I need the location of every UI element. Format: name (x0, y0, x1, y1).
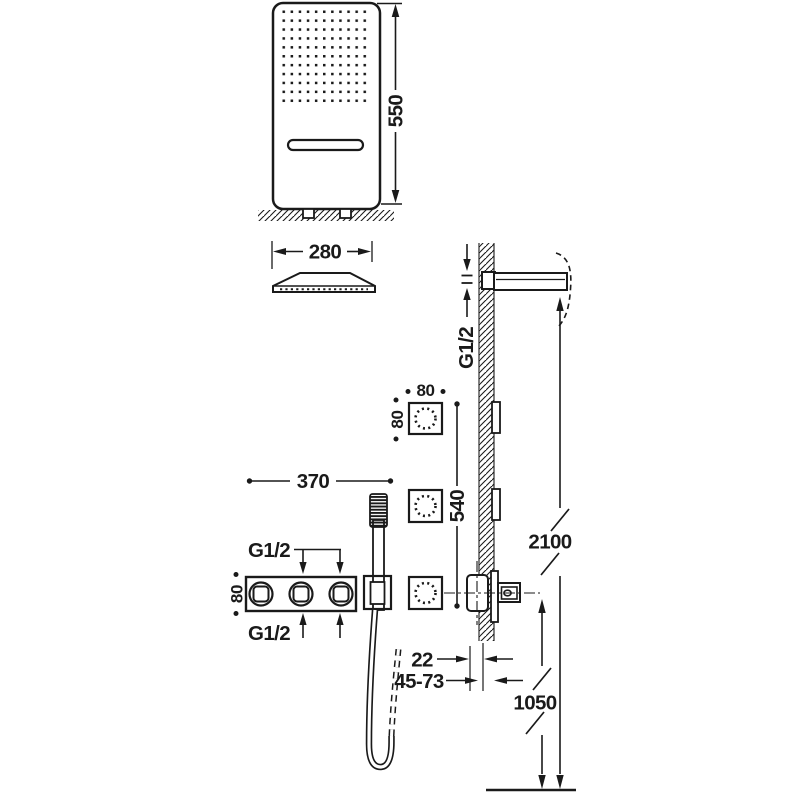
mixer-front-view (246, 577, 356, 611)
dim-1050: 1050 (513, 599, 556, 789)
dim-370: 370 (247, 470, 393, 493)
arrow-right (456, 656, 469, 663)
dim-280: 280 (272, 241, 372, 270)
shower-drawing: 550 280 G1/2 (0, 0, 800, 800)
break-mark (541, 553, 559, 575)
dim-80-mixer: 80 (228, 572, 247, 616)
jet-side-2 (492, 489, 500, 520)
body-jet-1 (409, 403, 442, 434)
arrow-down (299, 562, 306, 574)
technical-drawing-canvas: 550 280 G1/2 (0, 0, 800, 800)
dim-550-label: 550 (385, 95, 408, 128)
dim-45-73: 45-73 (394, 670, 523, 693)
dim-22-label: 22 (411, 649, 433, 672)
dim-550: 550 (377, 4, 408, 205)
nozzle-grid (283, 10, 372, 107)
dim-g12-top-label: G1/2 (248, 539, 290, 562)
break-mark (533, 668, 551, 690)
dim-540: 540 (446, 401, 469, 608)
waterfall-slot (288, 140, 363, 150)
arm-body (494, 273, 567, 290)
arrow-right (465, 677, 478, 684)
ceiling-hatch (258, 210, 394, 221)
body-jets-front-view (409, 403, 442, 609)
dim-80h-label: 80 (388, 410, 407, 428)
arrow-right (358, 248, 371, 255)
dim-45-73-label: 45-73 (394, 670, 444, 693)
dim-80-jet-height: 80 (388, 398, 407, 442)
hand-shower (364, 494, 399, 767)
dim-g12-mixer-top: G1/2 (248, 539, 344, 574)
break-mark (526, 712, 544, 734)
arrow-up (336, 613, 343, 625)
body-jet-2 (409, 490, 442, 522)
water-outlet-side-view (444, 561, 540, 625)
arrow-down (392, 190, 400, 203)
dim-80-mixer-label: 80 (228, 585, 247, 603)
arrow-up (392, 4, 400, 17)
arrow-up (463, 288, 470, 300)
dim-g12-mixer-bottom: G1/2 (248, 613, 344, 645)
mount-tab-left (303, 209, 314, 218)
overhead-shower-front-view (258, 3, 394, 221)
dim-g12-arm: G1/2 (455, 244, 478, 369)
arrow-up (299, 613, 306, 625)
mount-tab-right (340, 209, 351, 218)
dim-80w-label: 80 (416, 381, 434, 400)
handshower-head (370, 494, 387, 527)
outlet-escutcheon (491, 571, 498, 622)
arrow-down (538, 775, 545, 789)
arrow-left (273, 248, 286, 255)
dim-g12-arm-label: G1/2 (455, 327, 478, 369)
shower-arm-side-view (482, 253, 571, 328)
arrow-down (556, 775, 563, 789)
overhead-shower-side-view (273, 273, 375, 292)
arrow-up (556, 297, 563, 311)
jet-side-1 (492, 402, 500, 433)
arrow-left (484, 656, 497, 663)
arrow-up (538, 599, 545, 613)
dim-80-jet-width: 80 (406, 381, 446, 400)
arrow-left (494, 677, 507, 684)
arrow-down (463, 259, 470, 271)
break-mark (551, 509, 569, 531)
body-jet-3 (409, 577, 442, 609)
dim-2100: 2100 (528, 297, 571, 789)
handshower-holder-clamp (371, 582, 385, 604)
dim-1050-label: 1050 (513, 692, 556, 715)
dim-540-label: 540 (446, 490, 469, 523)
dim-2100-label: 2100 (528, 531, 571, 554)
dim-280-label: 280 (309, 241, 342, 264)
arrow-down (336, 562, 343, 574)
dim-370-label: 370 (297, 470, 330, 493)
dim-g12-bottom-label: G1/2 (248, 622, 290, 645)
